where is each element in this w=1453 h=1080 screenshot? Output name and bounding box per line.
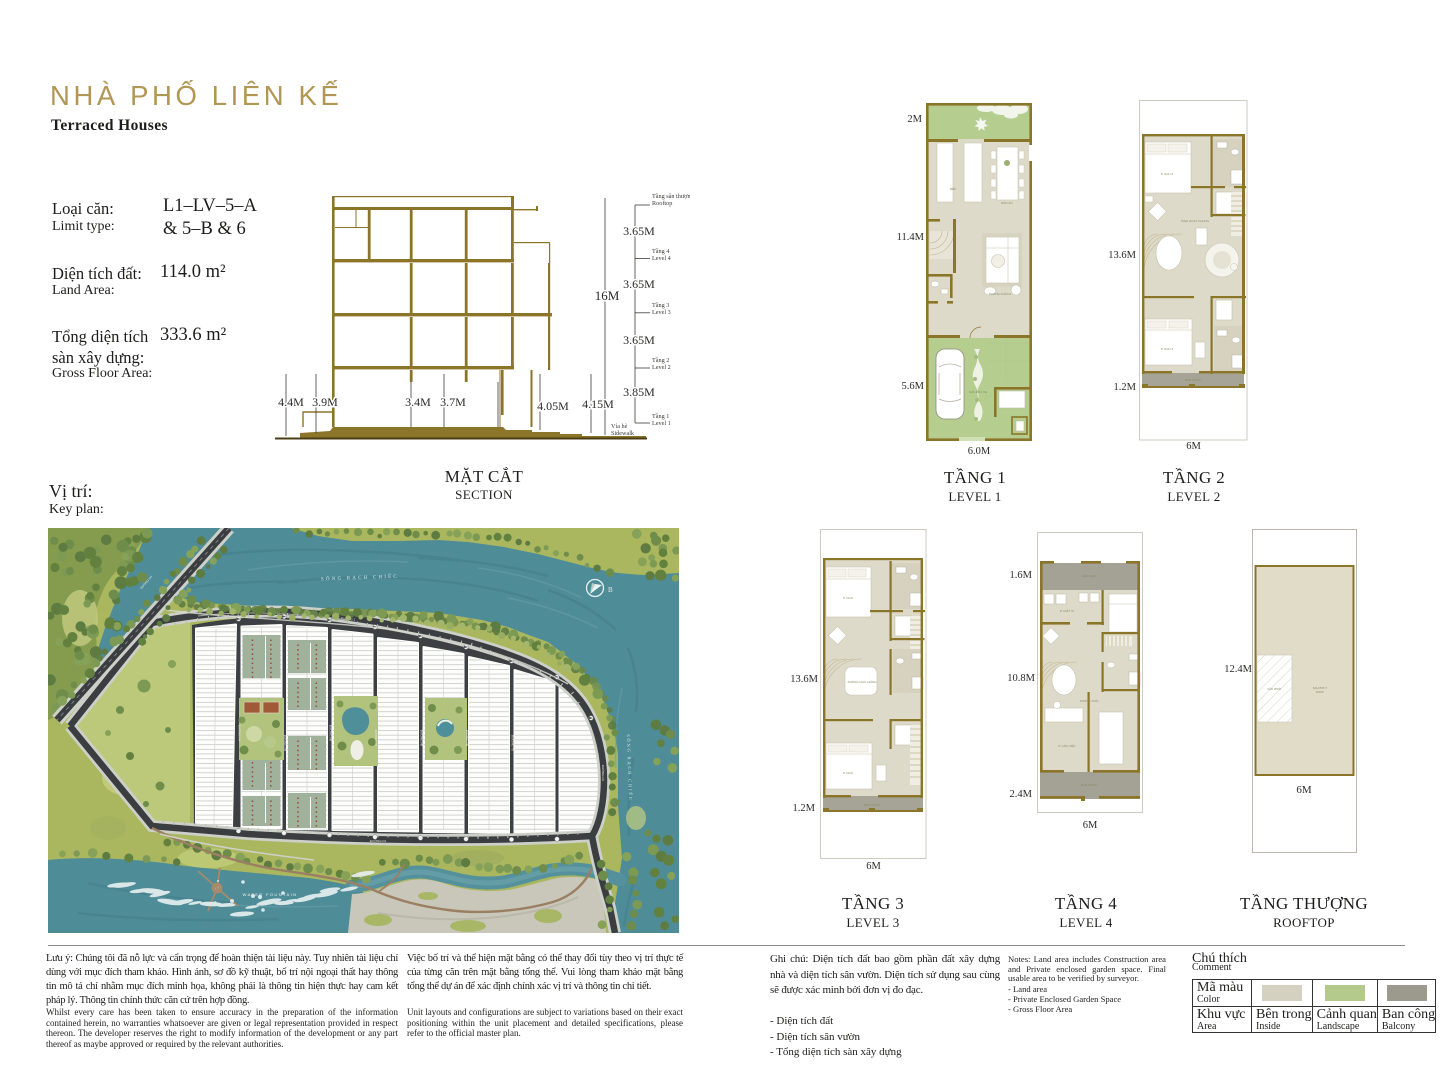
svg-text:3.65M: 3.65M: [623, 224, 655, 238]
svg-text:P. LÀM VIỆC: P. LÀM VIỆC: [1058, 743, 1076, 748]
svg-text:ĐƯỜNG N9: ĐƯỜNG N9: [465, 730, 470, 747]
svg-text:3.85M: 3.85M: [623, 385, 655, 399]
svg-text:ĐƯỜNG N5: ĐƯỜNG N5: [283, 735, 288, 752]
svg-text:ĐƯỜNG N7: ĐƯỜNG N7: [374, 730, 379, 747]
svg-text:Tầng sân thượng: Tầng sân thượng: [652, 193, 690, 200]
svg-text:PHÒNG NGỦ CHÍNH: PHÒNG NGỦ CHÍNH: [848, 679, 877, 684]
svg-text:ĐƯỜNG T5: ĐƯỜNG T5: [511, 735, 516, 751]
svg-text:ĐƯỜNG N8: ĐƯỜNG N8: [420, 730, 425, 747]
svg-text:Tầng 4: Tầng 4: [652, 248, 669, 255]
svg-text:SÂN ĐẬU XE: SÂN ĐẬU XE: [969, 389, 987, 394]
svg-text:Vỉa hè: Vỉa hè: [611, 423, 628, 430]
svg-text:ROOF: ROOF: [1316, 690, 1324, 694]
svg-text:4.15M: 4.15M: [582, 397, 614, 411]
svg-text:P. GIẶT ỦI: P. GIẶT ỦI: [1060, 608, 1074, 613]
svg-text:Tầng 2: Tầng 2: [652, 357, 669, 364]
svg-text:3.4M: 3.4M: [405, 395, 431, 409]
svg-text:ĐƯỜNG D1: ĐƯỜNG D1: [370, 838, 387, 843]
svg-text:BAN CÔNG: BAN CÔNG: [864, 802, 881, 807]
svg-text:ĐƯỜNG N1: ĐƯỜNG N1: [601, 765, 606, 782]
svg-text:Level 1: Level 1: [652, 420, 671, 427]
svg-text:3.7M: 3.7M: [440, 395, 466, 409]
svg-text:ĐƯỜNG N4: ĐƯỜNG N4: [238, 725, 243, 742]
svg-text:P. NGỦ: P. NGỦ: [843, 595, 853, 600]
svg-text:P. NGỦ 2: P. NGỦ 2: [1161, 171, 1174, 176]
svg-text:BẾP: BẾP: [950, 186, 956, 191]
svg-text:Level 2: Level 2: [652, 364, 671, 371]
svg-text:BÀN ĂN: BÀN ĂN: [1001, 201, 1012, 205]
svg-text:P. NGỦ 3: P. NGỦ 3: [1161, 346, 1174, 351]
svg-text:PHÒNG THỜ: PHÒNG THỜ: [1080, 698, 1099, 703]
svg-text:3.65M: 3.65M: [623, 277, 655, 291]
svg-text:BAN CÔNG: BAN CÔNG: [1185, 377, 1202, 382]
svg-text:Level 4: Level 4: [652, 255, 671, 262]
svg-text:B: B: [608, 586, 613, 594]
svg-text:6M: 6M: [1296, 784, 1312, 796]
svg-text:3.9M: 3.9M: [312, 395, 338, 409]
svg-text:16M: 16M: [595, 288, 620, 303]
svg-text:SÂN PHƠI: SÂN PHƠI: [1082, 573, 1097, 578]
svg-text:Rooftop: Rooftop: [652, 200, 672, 207]
svg-text:Tầng 3: Tầng 3: [652, 302, 669, 309]
svg-text:SÂN PHƠI: SÂN PHƠI: [1267, 686, 1281, 691]
svg-text:Sidewalk: Sidewalk: [611, 430, 635, 437]
svg-text:P. NGỦ: P. NGỦ: [843, 770, 853, 775]
svg-text:WATER FOUNTAIN: WATER FOUNTAIN: [243, 892, 298, 897]
svg-text:ĐƯỜNG N6: ĐƯỜNG N6: [329, 725, 334, 742]
svg-text:SINH HOẠT CHUNG: SINH HOẠT CHUNG: [1181, 219, 1210, 223]
svg-text:4.4M: 4.4M: [278, 395, 304, 409]
svg-text:4.05M: 4.05M: [537, 399, 569, 413]
svg-text:Tầng 1: Tầng 1: [652, 413, 669, 420]
svg-text:PHÒNG KHÁCH: PHÒNG KHÁCH: [989, 291, 1011, 296]
svg-text:Level 3: Level 3: [652, 309, 671, 316]
svg-text:BAN CÔNG: BAN CÔNG: [1081, 782, 1098, 787]
svg-text:3.65M: 3.65M: [623, 333, 655, 347]
